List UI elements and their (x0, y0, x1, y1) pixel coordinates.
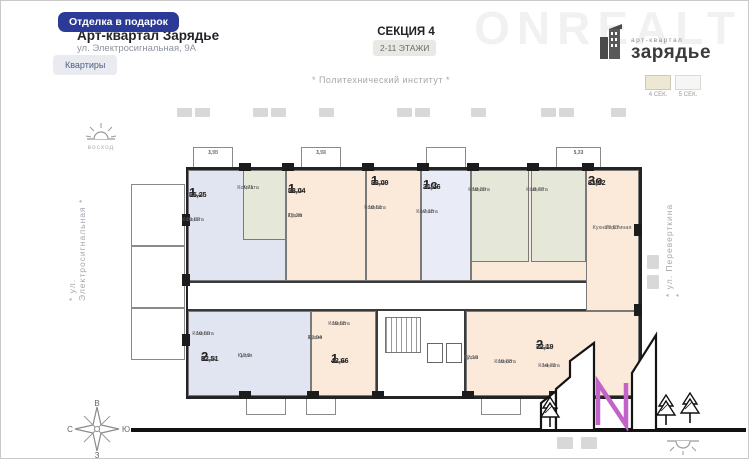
elevator (427, 343, 443, 363)
wall-pillar (527, 163, 539, 171)
compass-right-letter: Ю (122, 425, 130, 434)
wall-pillar (282, 163, 294, 171)
wall-pillar (634, 224, 642, 236)
wall-pillar (362, 163, 374, 171)
compass-top-letter: В (94, 399, 99, 408)
wall-pillar (239, 391, 251, 399)
wall-pillar (307, 391, 319, 399)
pavement-block (415, 108, 430, 117)
pavement-block (647, 275, 659, 289)
pavement-block (195, 108, 210, 117)
apartment-5-kitchen-wing (586, 170, 639, 311)
balcony (306, 399, 336, 415)
apartment-area: 81,92 (588, 181, 606, 188)
balcony: 5,321,73 (556, 147, 601, 169)
brand-logo: арт-квартал зарядье (599, 23, 711, 61)
sunrise-icon (85, 119, 117, 143)
right-street-label: * ул. Переверткина * (664, 197, 684, 297)
legend-section-5[interactable]: 5 СЕК. (675, 75, 701, 98)
balcony (426, 147, 466, 169)
compass-bottom-letter: З (95, 451, 100, 459)
wall-pillar (239, 163, 251, 171)
section-title: СЕКЦИЯ 4 (341, 26, 471, 38)
section-legend: 4 СЕК. 5 СЕК. (645, 75, 701, 98)
stair-elevator-core (376, 311, 466, 396)
tree-icon (679, 391, 701, 425)
brand-big-label: зарядье (631, 44, 711, 61)
building-logo-icon (599, 23, 625, 61)
legend-section-4-label: 4 СЕК. (645, 92, 671, 98)
page: ONREALT Отделка в подарок Арт-квартал За… (0, 0, 749, 459)
wall-pillar (582, 163, 594, 171)
letter-n-graphic (598, 383, 626, 425)
pavement-block (647, 255, 659, 269)
wall-pillar (634, 304, 642, 316)
pavement-block (581, 437, 597, 449)
legend-section-5-box (675, 75, 701, 90)
promo-badge: Отделка в подарок (58, 12, 179, 32)
elevator (446, 343, 462, 363)
pavement-block (271, 108, 286, 117)
loggia (131, 184, 185, 246)
stairs (385, 317, 421, 353)
wall-pillar (462, 391, 474, 399)
pavement-block (611, 108, 626, 117)
apartment-area: 42,66 (331, 359, 349, 366)
top-street-label: * Политехнический институт * (271, 75, 491, 85)
balcony: 3,521,76 (301, 147, 341, 169)
pavement-block (471, 108, 486, 117)
floors-badge: 2-11 ЭТАЖИ (373, 40, 436, 56)
apartment-1-top-left-room (243, 170, 286, 240)
left-street-label: * ул. Электросигнальная * (67, 191, 87, 301)
balcony: 3,501,75 (193, 147, 233, 169)
sunrise-label: восход (85, 144, 117, 151)
address-label: ул. Электросигнальная, 9А (77, 43, 196, 54)
apartment-2-top[interactable] (286, 170, 366, 281)
balcony (246, 399, 286, 415)
sunset-icon (665, 433, 701, 457)
pavement-block (177, 108, 192, 117)
legend-section-5-label: 5 СЕК. (675, 92, 701, 98)
tree-icon (655, 393, 677, 427)
wall-pillar (467, 163, 479, 171)
balcony-area: 1,75 (208, 151, 218, 157)
pavement-block (541, 108, 556, 117)
apartment-5-room-b (531, 170, 586, 262)
pavement-block (557, 437, 573, 449)
apartments-button[interactable]: Квартиры (53, 55, 117, 75)
apartment-5-room-a (471, 170, 529, 262)
balcony-area: 1,76 (316, 151, 326, 157)
apartment-area: 55,25 (189, 193, 207, 200)
apartment-area: 72,19 (536, 345, 554, 352)
legend-section-4[interactable]: 4 СЕК. (645, 75, 671, 98)
wall-pillar (182, 334, 190, 346)
corridor (188, 281, 586, 311)
apartment-area: 52,51 (201, 357, 219, 364)
pavement-block (253, 108, 268, 117)
apartment-area: 53,09 (371, 181, 389, 188)
apartment-area: 58,04 (288, 189, 306, 196)
pavement-block (559, 108, 574, 117)
wall-pillar (417, 163, 429, 171)
pavement-block (319, 108, 334, 117)
loggia (131, 246, 185, 308)
wall-pillar (372, 391, 384, 399)
pavement-block (397, 108, 412, 117)
legend-section-4-box (645, 75, 671, 90)
loggia (131, 308, 185, 360)
compass-left-letter: С (67, 425, 73, 434)
apartment-area: 31,46 (423, 185, 441, 192)
balcony-area: 1,73 (574, 151, 584, 157)
wall-pillar (182, 274, 190, 286)
balcony (481, 399, 521, 415)
tree-icon (539, 395, 561, 429)
compass-icon: В С Ю З (63, 399, 135, 459)
